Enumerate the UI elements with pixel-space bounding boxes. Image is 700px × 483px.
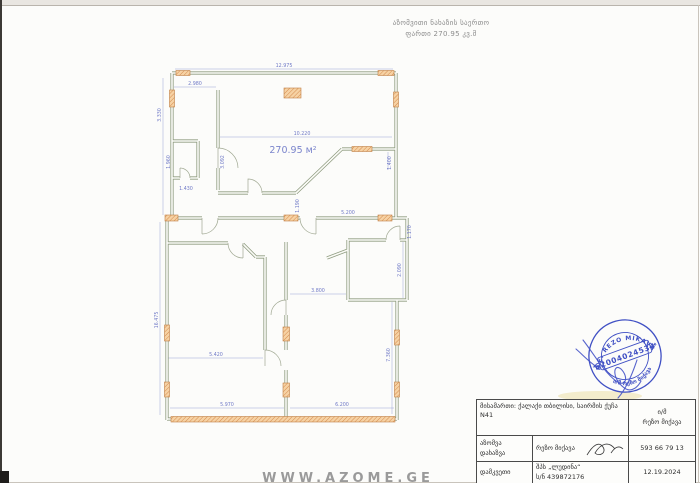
company-cell: ი/მ რეზო მიქავა — [629, 400, 696, 436]
dimension-label: 3.800 — [311, 288, 325, 294]
dimension-label: 1.960 — [166, 155, 172, 169]
title-block: მისამართი: ქალაქი თბილისი, საირმის ქუჩა … — [476, 399, 696, 483]
dimension-label: 5.420 — [209, 352, 223, 358]
client-name: შპს „ლუდინა“ — [536, 463, 625, 472]
client-label: დამკვეთი — [480, 468, 529, 477]
measure-label-line1: აზომვა — [480, 439, 529, 448]
dimension-labels: 12.975 2.980 3.330 10.220 1.400 3.092 1.… — [154, 63, 413, 408]
surveyor-signature — [584, 438, 626, 460]
watermark: WWW.AZOME.GE — [248, 471, 448, 483]
measure-name-cell: რეზო მიქავა — [533, 436, 629, 462]
date-value: 12.19.2024 — [643, 468, 680, 477]
measure-label-line2: დახაზვა — [480, 449, 529, 458]
dimension-label: 1.170 — [407, 225, 413, 239]
dimension-label: 7.360 — [386, 348, 392, 362]
measure-label-cell: აზომვა დახაზვა — [477, 436, 533, 462]
client-label-cell: დამკვეთი — [477, 462, 533, 483]
dimension-label: 5.200 — [341, 210, 355, 216]
dimension-label: 2.980 — [188, 81, 202, 87]
dimension-label: 3.092 — [220, 155, 226, 169]
walls-core — [165, 73, 407, 420]
address-text: მისამართი: ქალაქი თბილისი, საირმის ქუჩა … — [480, 402, 618, 419]
dimension-label: 3.330 — [157, 108, 163, 122]
company-type: ი/მ — [632, 408, 692, 417]
phone-number: 593 66 79 13 — [640, 444, 683, 453]
dimension-label: 16.475 — [154, 312, 160, 329]
door-swings — [180, 148, 400, 366]
client-date-cell: 12.19.2024 — [629, 462, 696, 483]
client-name-cell: შპს „ლუდინა“ ს/ნ 439872176 — [533, 462, 629, 483]
total-area-label: 270.95 м² — [269, 145, 316, 156]
dimension-label: 12.975 — [276, 63, 293, 69]
dimension-label: 1.190 — [295, 199, 301, 213]
measure-phone-cell: 593 66 79 13 — [629, 436, 696, 462]
dimension-label: 1.400 — [387, 156, 393, 170]
dimension-label: 6.200 — [335, 402, 349, 408]
window-hatches — [165, 71, 400, 423]
dimension-label: 2.090 — [397, 263, 403, 277]
client-id: ს/ნ 439872176 — [536, 473, 625, 482]
address-cell: მისამართი: ქალაქი თბილისი, საირმის ქუჩა … — [477, 400, 629, 436]
company-name: რეზო მიქავა — [632, 418, 692, 427]
dimension-label: 1.430 — [179, 186, 193, 192]
dimension-label: 10.220 — [294, 131, 311, 137]
scanned-drawing-sheet: აზომვითი ნახაზის საერთო ფართი 270.95 კვ.… — [0, 0, 700, 483]
dimension-label: 5.970 — [220, 402, 234, 408]
